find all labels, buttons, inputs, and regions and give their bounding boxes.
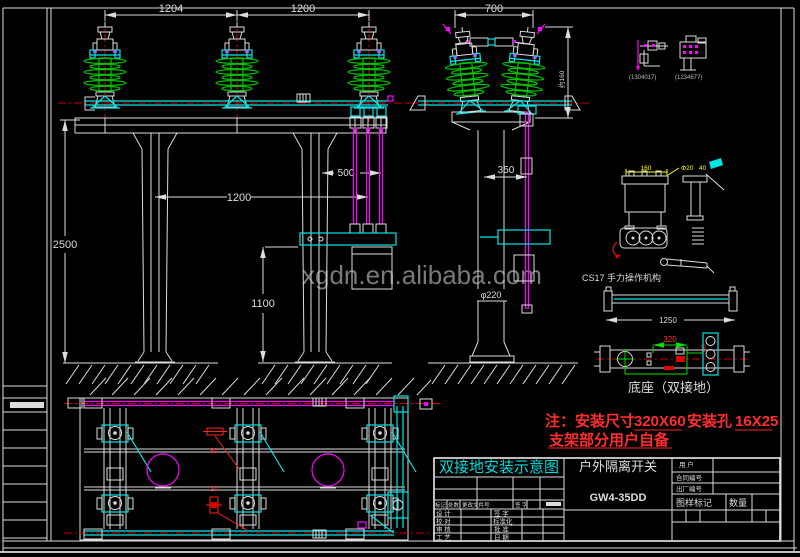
- titleblock-rev-count: 处数: [448, 501, 460, 509]
- note-prefix: 注：安装尺寸: [545, 412, 635, 430]
- titleblock-rev-mark: 标记: [435, 501, 447, 509]
- titleblock-rev-doc: 更改文件号: [462, 501, 490, 509]
- installation-note: 注：安装尺寸 320X60 安装孔 16X25 支架部分用户自备: [545, 412, 778, 449]
- mechanism-views: 160 Φ20 40: [582, 158, 724, 283]
- dim-700: 700: [485, 3, 503, 15]
- margin-scale: [3, 386, 47, 538]
- titleblock-customer: 用 户: [679, 460, 694, 469]
- detail-a: (1304017): [629, 40, 668, 81]
- titleblock-rev-sign: 签 字: [515, 501, 528, 509]
- svg-text:注：安装尺寸 320X60 安装孔: 注：安装尺寸 320X60 安装孔 16X25: [545, 412, 778, 430]
- dim-pole-dia: φ220: [481, 290, 502, 300]
- dim-front-height: 2500: [53, 120, 80, 363]
- dim-mech-depth: 40: [699, 165, 707, 172]
- base-label: 底座（双接地）: [628, 380, 719, 395]
- dim-side-span: 700: [455, 3, 533, 28]
- note-mid: 安装孔: [687, 412, 732, 430]
- detail-b: (1234677): [675, 36, 706, 81]
- dim-80: 80: [210, 448, 218, 455]
- dim-1100: 1100: [251, 298, 275, 310]
- dim-1200-top: 1200: [291, 3, 315, 15]
- detail-b-label: (1234677): [675, 75, 702, 81]
- pillar-left: [133, 133, 177, 362]
- titleblock-quantity: 数量: [729, 497, 747, 508]
- pillar-right: [293, 133, 337, 362]
- dim-front-spans: 1204 1200: [105, 3, 369, 21]
- plan-phase-b: [230, 408, 284, 529]
- titleblock-approve: 批 准: [494, 525, 509, 534]
- titleblock-contract: 合同编号: [676, 473, 703, 482]
- ground-front: [63, 363, 392, 384]
- dim-front-rod-height: 1100: [251, 247, 298, 362]
- note-line2: 支架部分用户自备: [548, 431, 670, 449]
- front-view: 1204 1200: [53, 3, 428, 384]
- dim-500: 500: [338, 168, 355, 179]
- titleblock-sign: 签 字: [494, 509, 509, 518]
- dim-320: 320: [663, 335, 677, 344]
- plan-phase-a: [97, 408, 151, 529]
- dim-2500: 2500: [53, 239, 77, 251]
- title-block: 双接地安装示意图 户外隔离开关 GW4-35DD 用 户 合同编号 出厂编号 图…: [434, 458, 780, 542]
- watermark-text: xgdn.en.alibaba.com: [302, 260, 542, 290]
- dim-350: 350: [498, 165, 515, 176]
- dim-1200-mid: 1200: [227, 192, 251, 204]
- titleblock-standard: 标准化: [493, 517, 513, 526]
- dim-front-pillar-span: 1200: [155, 192, 368, 204]
- dim-20: 20: [210, 486, 218, 493]
- dim-1204: 1204: [159, 3, 183, 15]
- note-dim1: 320X60: [634, 413, 686, 430]
- titleblock-factory: 出厂编号: [676, 484, 703, 493]
- base-plate: 320 60 底座（双接地）: [594, 333, 750, 395]
- titleblock-product: 户外隔离开关: [579, 459, 657, 474]
- cad-drawing-sheet: xgdn.en.alibaba.com 1204 1200: [0, 0, 800, 557]
- plan-view: 80 20: [64, 378, 440, 540]
- ground-side: [428, 363, 578, 384]
- dim-mech-hole: Φ20: [681, 165, 694, 172]
- titleblock-process: 工 艺: [436, 534, 451, 542]
- dim-height-note: 约160: [557, 70, 566, 88]
- drawing-canvas: xgdn.en.alibaba.com 1204 1200: [0, 0, 800, 557]
- side-view: 700: [405, 3, 590, 384]
- detail-a-label: (1304017): [629, 75, 656, 81]
- support-beam: [75, 118, 386, 133]
- dim-side-height: 约160: [535, 27, 573, 118]
- titleblock-check: 校 对: [436, 517, 451, 526]
- dim-front-offset: 500: [322, 168, 381, 179]
- dim-1250: 1250: [659, 316, 677, 325]
- titleblock-review: 审 核: [436, 525, 451, 534]
- titleblock-title: 双接地安装示意图: [439, 458, 559, 476]
- mechanism-label: CS17 手力操作机构: [582, 272, 661, 283]
- note-dim2: 16X25: [735, 413, 778, 430]
- mounting-bar: 1250: [604, 287, 737, 325]
- plan-callout-bottom: 20: [206, 486, 247, 530]
- titleblock-drawing-mark: 图样标记: [676, 497, 712, 508]
- titleblock-design: 设 计: [436, 509, 451, 518]
- titleblock-date: 日 期: [494, 534, 509, 542]
- titleblock-model: GW4-35DD: [590, 492, 647, 504]
